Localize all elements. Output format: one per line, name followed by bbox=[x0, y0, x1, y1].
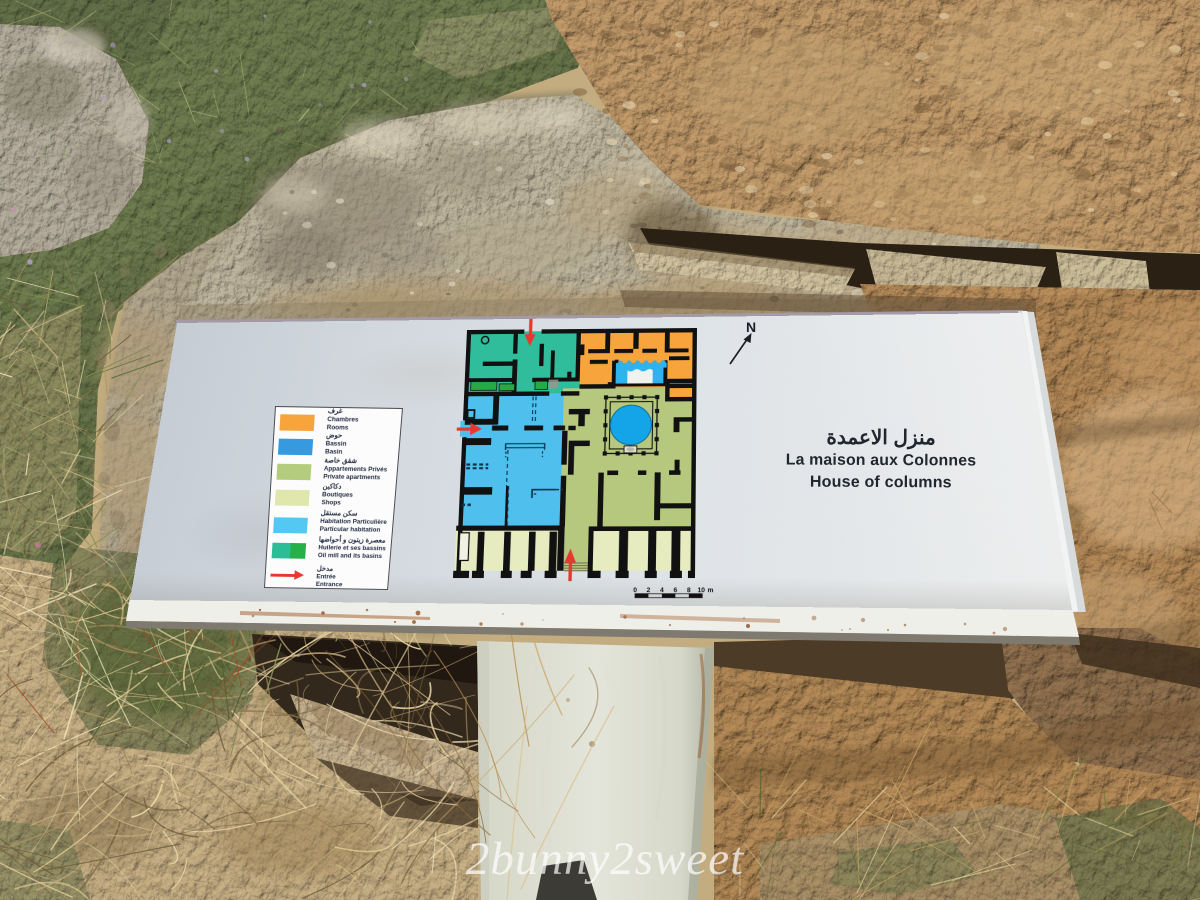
svg-text:0: 0 bbox=[633, 586, 638, 594]
svg-text:m: m bbox=[708, 586, 715, 594]
svg-text:10: 10 bbox=[698, 586, 706, 594]
svg-text:4: 4 bbox=[660, 586, 664, 594]
svg-text:8: 8 bbox=[687, 586, 691, 594]
svg-text:6: 6 bbox=[674, 586, 678, 594]
svg-text:N: N bbox=[746, 319, 756, 335]
svg-text:2: 2 bbox=[647, 586, 651, 594]
